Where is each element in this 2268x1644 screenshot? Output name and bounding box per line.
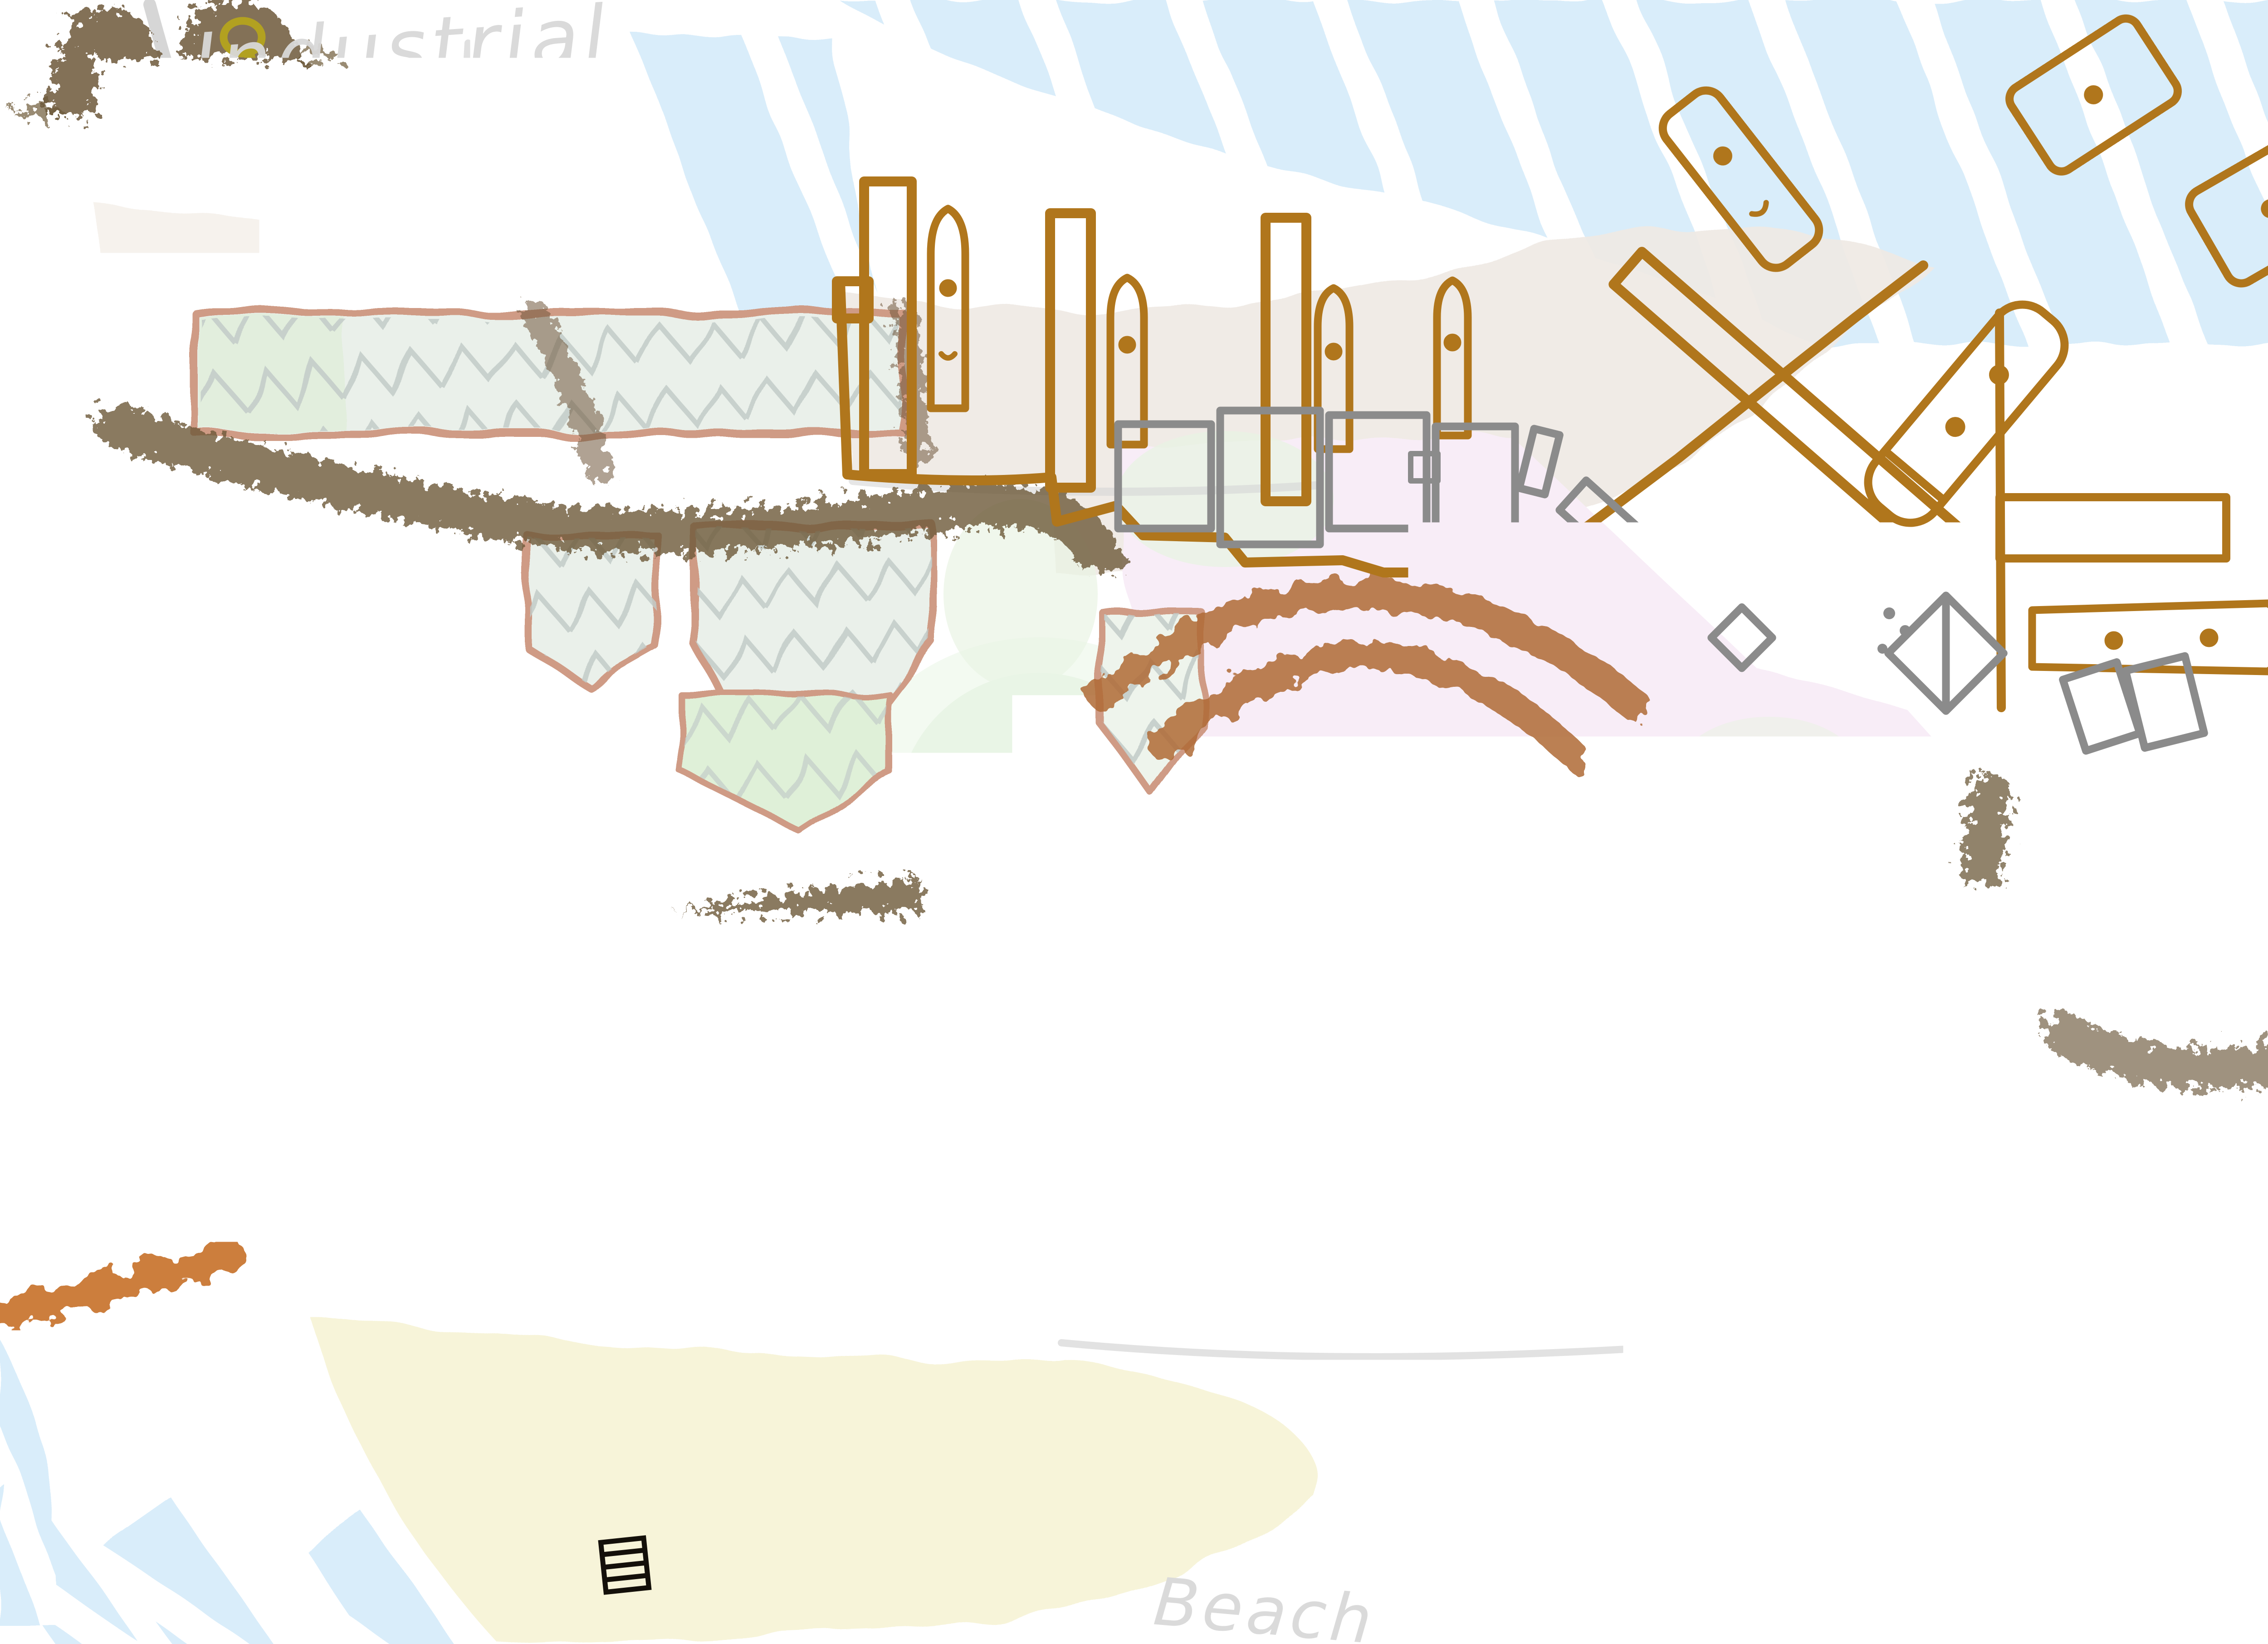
- hand-drawn-city-map: Industrial dock Castle High wage Beach: [0, 0, 2268, 1644]
- round-bastion-interior: [2025, 753, 2268, 1007]
- octagon-tower: [1039, 796, 1247, 1005]
- map-canvas: Industrial dock Castle High wage Beach: [0, 0, 2268, 1644]
- label-industrial: Industrial: [190, 0, 613, 110]
- label-castle: Castle: [1843, 1362, 2095, 1460]
